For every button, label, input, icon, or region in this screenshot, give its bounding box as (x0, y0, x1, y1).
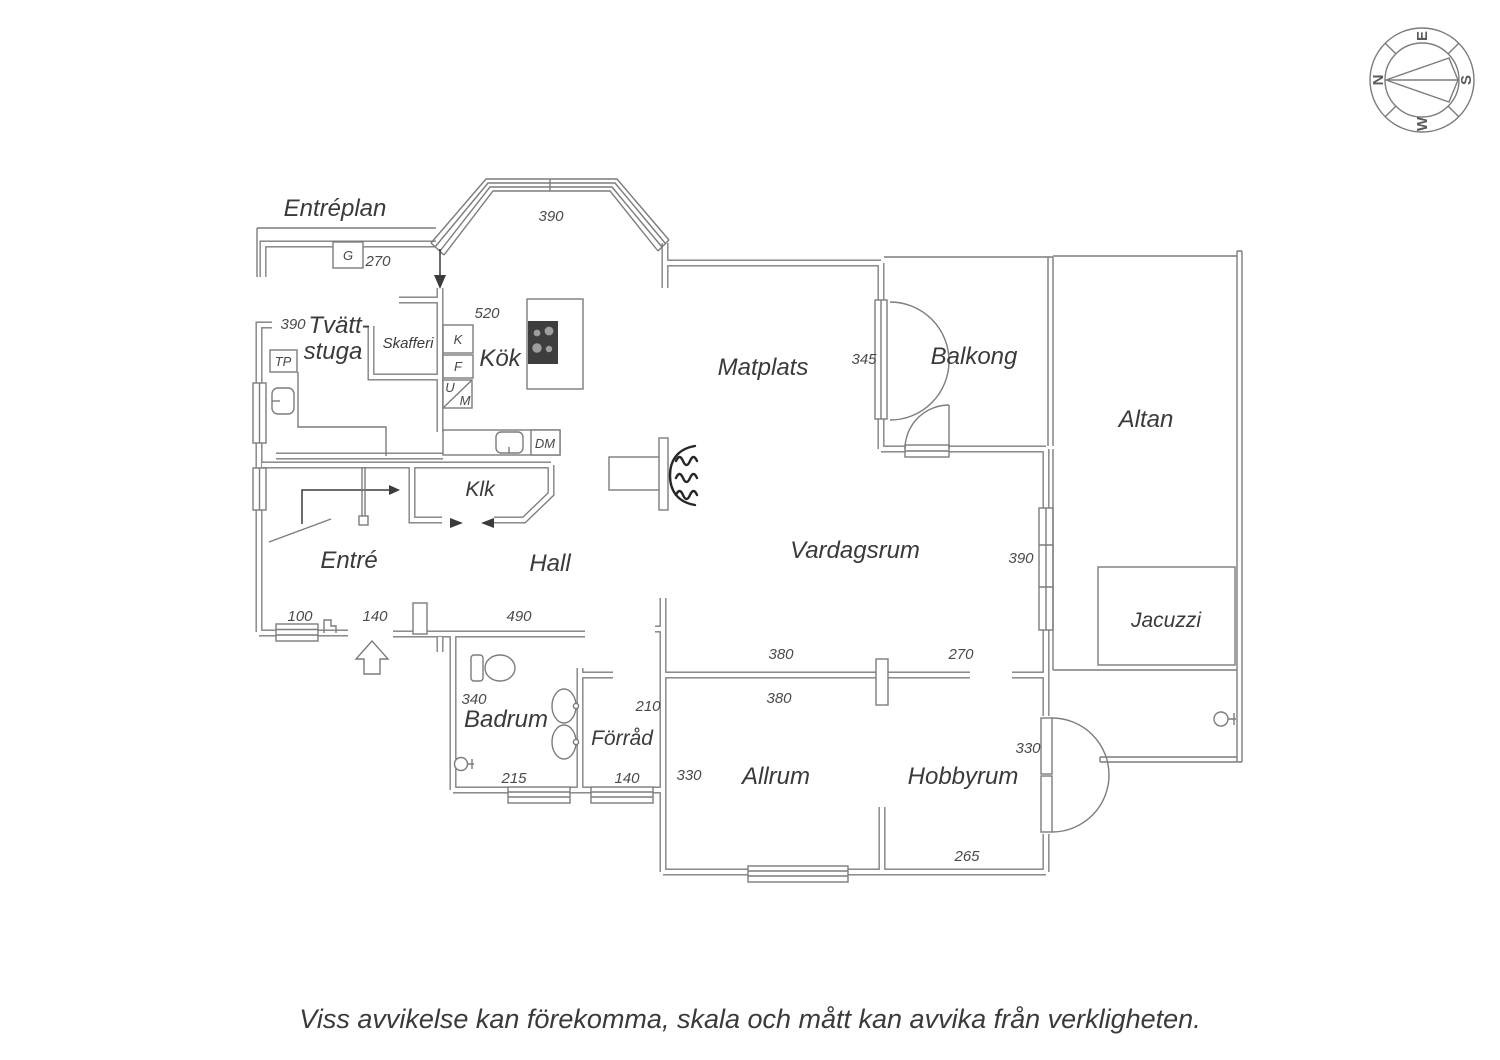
dim-hall: 490 (506, 608, 532, 625)
stairs-up-arrow (389, 485, 400, 495)
altan-deck-edge (1053, 251, 1242, 762)
floorplan-drawing: N E S W Entréplan Tvätt- stuga Skafferi … (0, 0, 1500, 1060)
compass-e: E (1414, 31, 1431, 41)
room-label-entre: Entré (320, 547, 377, 574)
sink-tap (573, 703, 578, 708)
room-label-kok: Kök (479, 345, 522, 372)
room-label-skafferi: Skafferi (383, 335, 435, 352)
room-label-balkong: Balkong (931, 343, 1018, 370)
hobby-door-panel (1041, 776, 1052, 832)
doors (890, 302, 1109, 832)
dim-tvattstuga: 390 (280, 316, 306, 333)
room-labels: Entréplan Tvätt- stuga Skafferi Kök Klk … (284, 195, 1203, 790)
window (276, 624, 318, 641)
room-label-vardagsrum: Vardagsrum (790, 537, 920, 564)
label-wardrobe: G (343, 248, 353, 263)
room-label-klk: Klk (465, 478, 496, 501)
window (1039, 508, 1053, 630)
stove-icon (528, 321, 558, 364)
dim-bay: 390 (538, 208, 564, 225)
dim-balkong: 345 (851, 351, 877, 368)
room-label-jacuzzi: Jacuzzi (1130, 609, 1202, 632)
sink-tap (573, 739, 578, 744)
toilet-bowl (485, 655, 515, 681)
room-label-forrad: Förråd (591, 727, 654, 750)
sliding-door-arrows (450, 518, 494, 528)
window (253, 383, 266, 443)
dim-porch: 270 (364, 253, 391, 270)
dim-hobbyrum-door: 330 (1015, 740, 1041, 757)
label-fridge: K (454, 332, 464, 347)
terrace-wall (1100, 757, 1237, 762)
dim-kok: 520 (474, 305, 500, 322)
label-freezer: F (454, 359, 463, 374)
windows (253, 300, 1053, 882)
dim-vardagsrum-right: 270 (947, 646, 974, 663)
hobby-french-door (1052, 775, 1109, 832)
hobby-french-door (1052, 718, 1109, 775)
label-dishwasher: DM (535, 436, 555, 451)
dim-forrad-w: 140 (614, 770, 640, 787)
dim-allrum-h: 330 (676, 767, 702, 784)
dim-entre-window: 100 (287, 608, 313, 625)
compass-rose: N E S W (1370, 28, 1475, 132)
dim-hobbyrum-w: 265 (953, 848, 980, 865)
stairs (269, 467, 400, 542)
entry-direction-arrow (356, 641, 388, 674)
floorplan-page: N E S W Entréplan Tvätt- stuga Skafferi … (0, 0, 1500, 1060)
compass-needle (1386, 58, 1458, 102)
door-threshold (905, 445, 949, 457)
room-label-matplats: Matplats (718, 354, 809, 381)
room-label-allrum: Allrum (740, 763, 810, 790)
window (591, 787, 653, 803)
balcony-single-door (905, 405, 949, 449)
toilet-tank (471, 655, 483, 681)
dim-badrum-h: 340 (461, 691, 487, 708)
dim-vardagsrum-window: 390 (1008, 550, 1034, 567)
hobby-door-panel (1041, 718, 1052, 774)
dim-vardagsrum-w: 380 (768, 646, 794, 663)
room-label-tvattstuga: Tvätt- (308, 312, 369, 339)
room-label-altan: Altan (1117, 406, 1174, 433)
door-threshold (875, 300, 887, 419)
window (748, 866, 848, 882)
laundry-counter (298, 372, 386, 456)
compass-w: W (1414, 116, 1431, 131)
fireplace-icon (609, 438, 697, 510)
room-label-hall: Hall (529, 550, 571, 577)
room-label-badrum: Badrum (464, 706, 548, 733)
floor-title: Entréplan (284, 195, 387, 222)
dim-badrum-w: 215 (500, 770, 527, 787)
compass-n: N (1370, 75, 1387, 86)
wall-pillar (413, 603, 427, 634)
room-label-hobbyrum: Hobbyrum (908, 763, 1019, 790)
disclaimer-text: Viss avvikelse kan förekomma, skala och … (299, 1004, 1200, 1034)
outdoor-shower-icon (1214, 712, 1236, 726)
label-tp: TP (275, 354, 292, 369)
compass-s: S (1458, 75, 1475, 85)
label-micro: M (460, 393, 471, 408)
decks (884, 251, 1242, 762)
room-label-tvattstuga: stuga (304, 338, 363, 365)
sink-icon (552, 689, 576, 723)
label-oven: U (445, 380, 455, 395)
dim-entre-door: 140 (362, 608, 388, 625)
shower-icon (455, 758, 475, 771)
wall-pillar (876, 659, 888, 705)
dim-allrum-w: 380 (766, 690, 792, 707)
sink-icon (552, 725, 576, 759)
window (253, 468, 266, 510)
dim-forrad-h: 210 (634, 698, 661, 715)
window (508, 787, 570, 803)
